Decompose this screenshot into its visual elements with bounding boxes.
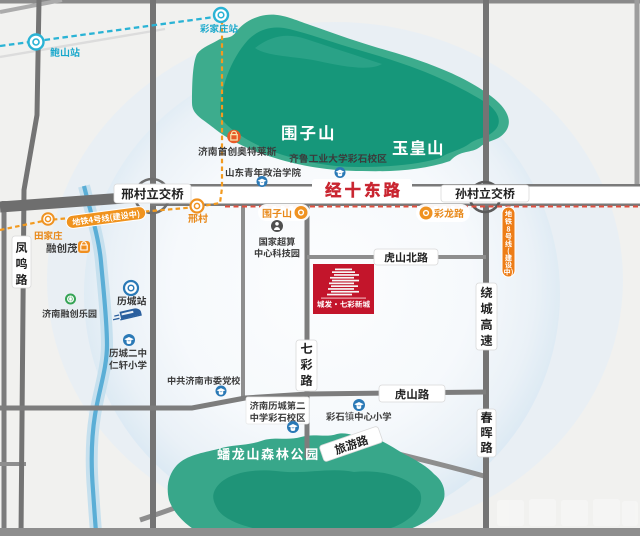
svg-text:虎山路: 虎山路 (395, 387, 430, 403)
svg-text:鸣: 鸣 (15, 255, 27, 272)
svg-text:鲍山站: 鲍山站 (50, 44, 80, 59)
svg-text:田家庄: 田家庄 (34, 228, 63, 242)
svg-text:路: 路 (300, 371, 313, 389)
svg-text:路: 路 (15, 271, 27, 288)
svg-text:齐鲁工业大学彩石校区: 齐鲁工业大学彩石校区 (289, 151, 387, 165)
svg-text:济南首创奥特莱斯: 济南首创奥特莱斯 (198, 144, 277, 158)
svg-text:中学彩石校区: 中学彩石校区 (250, 410, 306, 424)
svg-text:邢村: 邢村 (188, 210, 208, 225)
svg-text:围子山: 围子山 (281, 120, 337, 144)
svg-text:经十东路: 经十东路 (325, 177, 403, 201)
svg-text:城发·七彩新城: 城发·七彩新城 (317, 299, 371, 310)
svg-text:围子山: 围子山 (262, 205, 292, 220)
svg-text:融创茂: 融创茂 (46, 241, 78, 256)
svg-text:速: 速 (480, 331, 492, 349)
svg-text:彩石镇中心小学: 彩石镇中心小学 (326, 409, 392, 423)
svg-text:蟠龙山森林公园: 蟠龙山森林公园 (217, 444, 320, 463)
svg-text:历城站: 历城站 (117, 294, 147, 308)
svg-text:路: 路 (480, 438, 493, 456)
svg-text:仁轩小学: 仁轩小学 (109, 358, 148, 372)
svg-text:中心科技园: 中心科技园 (254, 246, 300, 260)
svg-text:中): 中) (504, 268, 514, 278)
svg-text:邢村立交桥: 邢村立交桥 (121, 184, 184, 203)
svg-text:虎山北路: 虎山北路 (384, 250, 428, 266)
svg-text:玉皇山: 玉皇山 (392, 135, 445, 159)
svg-text:彩家庄站: 彩家庄站 (200, 21, 239, 35)
svg-text:济南融创乐园: 济南融创乐园 (42, 306, 97, 320)
svg-text:凤: 凤 (15, 239, 27, 256)
svg-text:彩龙路: 彩龙路 (434, 205, 464, 220)
svg-text:孙村立交桥: 孙村立交桥 (455, 185, 515, 202)
svg-text:中共济南市委党校: 中共济南市委党校 (167, 373, 241, 387)
